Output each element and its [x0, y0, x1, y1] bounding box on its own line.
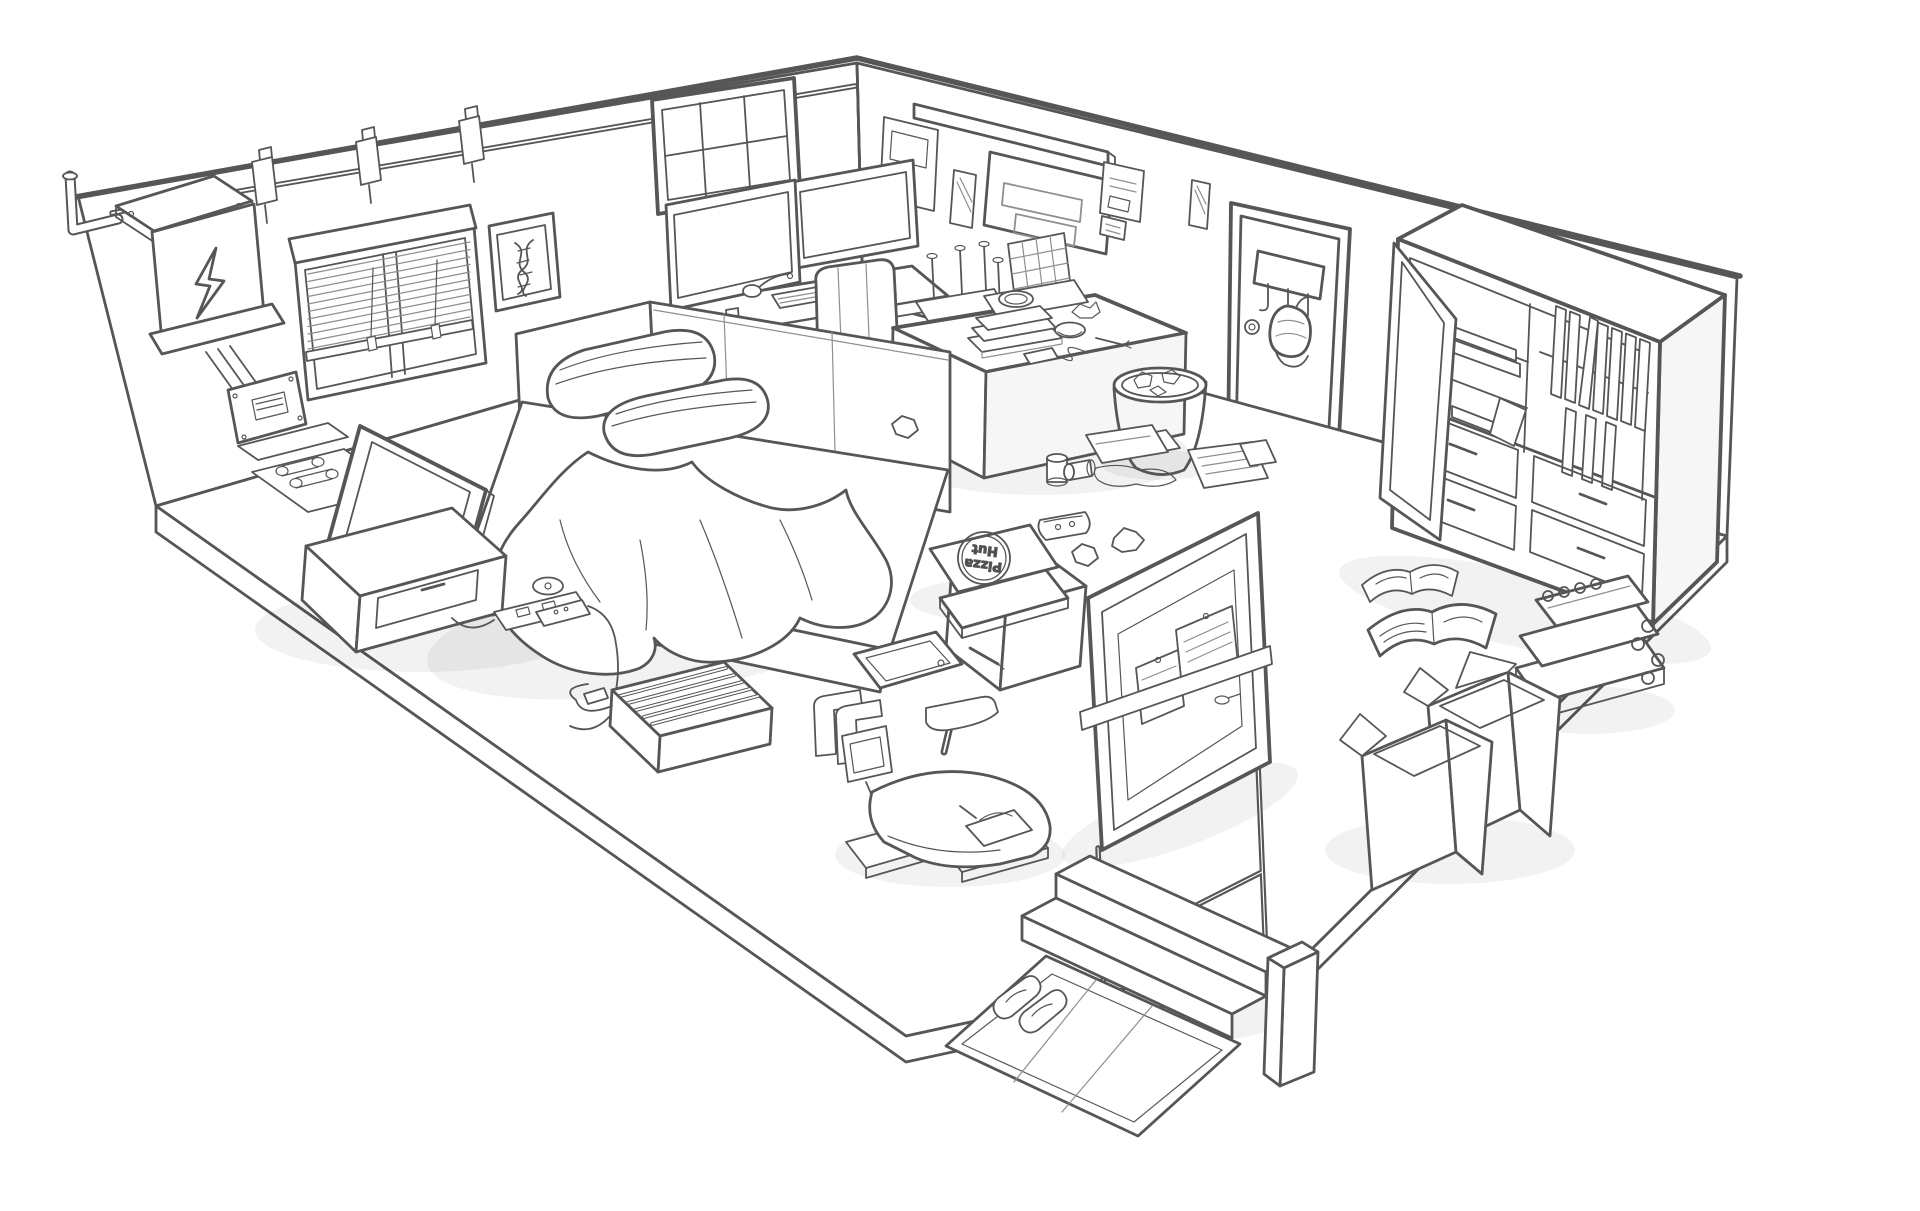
step-parapet — [1264, 942, 1318, 1086]
dna-picture-frame — [489, 213, 560, 311]
room-sketch-page: Pizza Hut — [0, 0, 1920, 1211]
poster-tiny — [1189, 180, 1210, 229]
door-knob — [1245, 320, 1259, 334]
cd-disc — [533, 578, 563, 595]
pizza-box-logo-line2: Hut — [971, 541, 999, 559]
isometric-room-illustration: Pizza Hut — [0, 0, 1920, 1211]
bowl — [1055, 323, 1085, 338]
poster-narrow — [950, 170, 976, 228]
